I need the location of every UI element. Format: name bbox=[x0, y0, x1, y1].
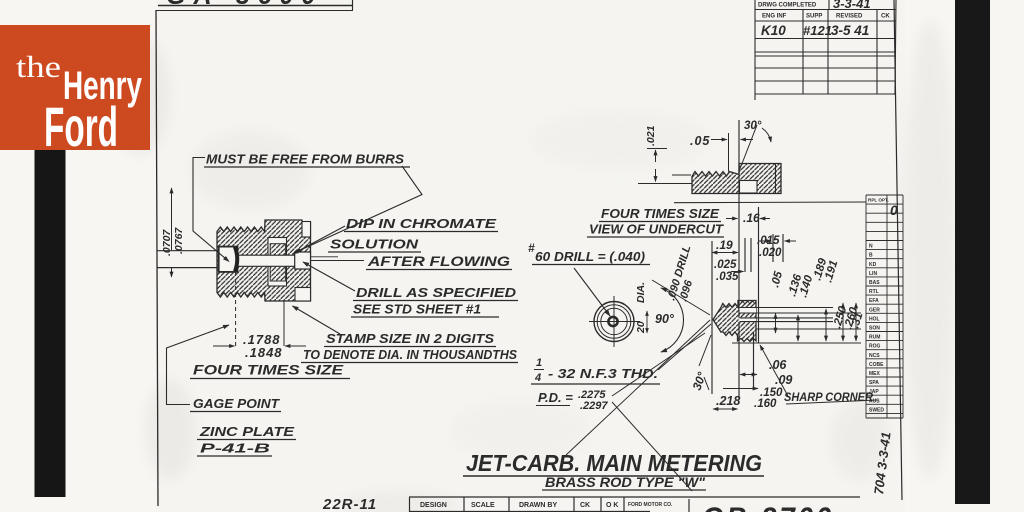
svg-text:4: 4 bbox=[534, 372, 541, 384]
svg-text:90°: 90° bbox=[655, 312, 675, 326]
svg-text:FORD MOTOR CO.: FORD MOTOR CO. bbox=[628, 502, 673, 508]
svg-text:GAGE POINT: GAGE POINT bbox=[193, 396, 280, 411]
svg-text:.035: .035 bbox=[716, 271, 739, 283]
svg-text:TO DENOTE DIA. IN THOUSANDTHS: TO DENOTE DIA. IN THOUSANDTHS bbox=[303, 348, 518, 362]
svg-text:0: 0 bbox=[890, 202, 898, 218]
svg-text:NCS: NCS bbox=[869, 353, 880, 359]
svg-text:.1848: .1848 bbox=[245, 345, 283, 360]
svg-text:P.D. =: P.D. = bbox=[538, 390, 573, 405]
svg-text:MUST BE FREE FROM BURRS: MUST BE FREE FROM BURRS bbox=[206, 152, 404, 167]
svg-text:AFTER FLOWING: AFTER FLOWING bbox=[367, 254, 511, 269]
svg-text:30°: 30° bbox=[744, 120, 762, 132]
svg-text:CK: CK bbox=[580, 502, 590, 509]
svg-text:#: # bbox=[528, 241, 535, 255]
svg-text:.218: .218 bbox=[716, 394, 740, 408]
svg-text:.16: .16 bbox=[743, 211, 760, 225]
svg-text:P-41-B: P-41-B bbox=[200, 441, 270, 456]
svg-text:RUM: RUM bbox=[869, 335, 880, 341]
svg-text:DESIGN: DESIGN bbox=[420, 502, 447, 509]
svg-text:BAS: BAS bbox=[869, 280, 880, 286]
svg-text:ENG INF: ENG INF bbox=[762, 14, 787, 20]
svg-text:CK: CK bbox=[881, 14, 890, 20]
svg-text:GB-3700: GB-3700 bbox=[702, 502, 834, 512]
svg-text:.05: .05 bbox=[690, 134, 710, 148]
svg-text:K10: K10 bbox=[761, 23, 786, 38]
svg-text:SWED: SWED bbox=[869, 407, 884, 413]
svg-text:- 32 N.F.3 THD.: - 32 N.F.3 THD. bbox=[548, 366, 658, 381]
svg-text:GA-3600: GA-3600 bbox=[166, 0, 323, 10]
svg-text:O K: O K bbox=[606, 502, 618, 509]
svg-text:MEX: MEX bbox=[869, 371, 881, 377]
svg-text:ZINC PLATE: ZINC PLATE bbox=[199, 424, 295, 439]
svg-text:DRAWN BY: DRAWN BY bbox=[519, 502, 557, 509]
svg-text:.06: .06 bbox=[769, 358, 787, 372]
svg-text:the: the bbox=[16, 49, 61, 84]
svg-text:LIN: LIN bbox=[869, 271, 877, 277]
svg-text:.0767: .0767 bbox=[173, 227, 185, 254]
svg-text:SEE STD SHEET #1: SEE STD SHEET #1 bbox=[353, 302, 481, 317]
svg-text:#121: #121 bbox=[803, 23, 832, 38]
svg-text:FOUR TIMES SIZE: FOUR TIMES SIZE bbox=[193, 362, 344, 378]
svg-text:REVISED: REVISED bbox=[836, 14, 863, 20]
svg-text:DRILL AS SPECIFIED: DRILL AS SPECIFIED bbox=[356, 285, 517, 300]
svg-text:Ford: Ford bbox=[44, 95, 118, 158]
svg-text:RTL: RTL bbox=[869, 289, 879, 295]
svg-text:SUPP: SUPP bbox=[806, 14, 822, 20]
svg-text:SON: SON bbox=[869, 326, 880, 332]
svg-text:FOUR TIMES SIZE: FOUR TIMES SIZE bbox=[601, 206, 719, 221]
svg-text:SOLUTION: SOLUTION bbox=[330, 237, 419, 252]
svg-text:DIP IN CHROMATE: DIP IN CHROMATE bbox=[346, 216, 496, 231]
svg-text:.160: .160 bbox=[754, 398, 777, 410]
svg-text:.09: .09 bbox=[775, 373, 792, 387]
svg-text:SPA: SPA bbox=[869, 380, 879, 386]
svg-text:COBE: COBE bbox=[869, 362, 884, 368]
svg-text:3-5 41: 3-5 41 bbox=[831, 23, 869, 38]
svg-text:.19: .19 bbox=[716, 238, 733, 252]
svg-text:HOL: HOL bbox=[869, 316, 880, 322]
svg-text:60 DRILL = (.040): 60 DRILL = (.040) bbox=[535, 249, 645, 264]
svg-text:B: B bbox=[869, 253, 873, 259]
svg-text:22R-11: 22R-11 bbox=[322, 496, 377, 512]
svg-text:ROG: ROG bbox=[869, 344, 881, 350]
svg-text:.025: .025 bbox=[714, 259, 737, 271]
svg-text:DRWG COMPLETED: DRWG COMPLETED bbox=[758, 3, 817, 9]
svg-text:SCALE: SCALE bbox=[471, 502, 495, 509]
svg-text:KD: KD bbox=[869, 262, 877, 268]
svg-text:1: 1 bbox=[536, 357, 542, 369]
svg-text:.021: .021 bbox=[645, 125, 657, 146]
svg-text:DIA.: DIA. bbox=[635, 282, 647, 303]
svg-text:JET-CARB. MAIN METERING: JET-CARB. MAIN METERING bbox=[466, 450, 762, 476]
svg-text:.2297: .2297 bbox=[580, 400, 608, 412]
svg-text:.020: .020 bbox=[759, 247, 782, 259]
svg-text:STAMP SIZE IN 2 DIGITS: STAMP SIZE IN 2 DIGITS bbox=[326, 331, 494, 346]
svg-text:BRASS ROD TYPE "W": BRASS ROD TYPE "W" bbox=[545, 475, 706, 490]
svg-text:EFA: EFA bbox=[869, 298, 879, 304]
svg-text:VIEW OF UNDERCUT: VIEW OF UNDERCUT bbox=[589, 222, 724, 237]
svg-text:RPL OPT.: RPL OPT. bbox=[868, 198, 889, 203]
svg-text:N: N bbox=[869, 244, 873, 250]
svg-text:GER: GER bbox=[869, 307, 880, 313]
svg-text:3-3-41: 3-3-41 bbox=[833, 0, 871, 11]
svg-text:20: 20 bbox=[635, 321, 647, 334]
